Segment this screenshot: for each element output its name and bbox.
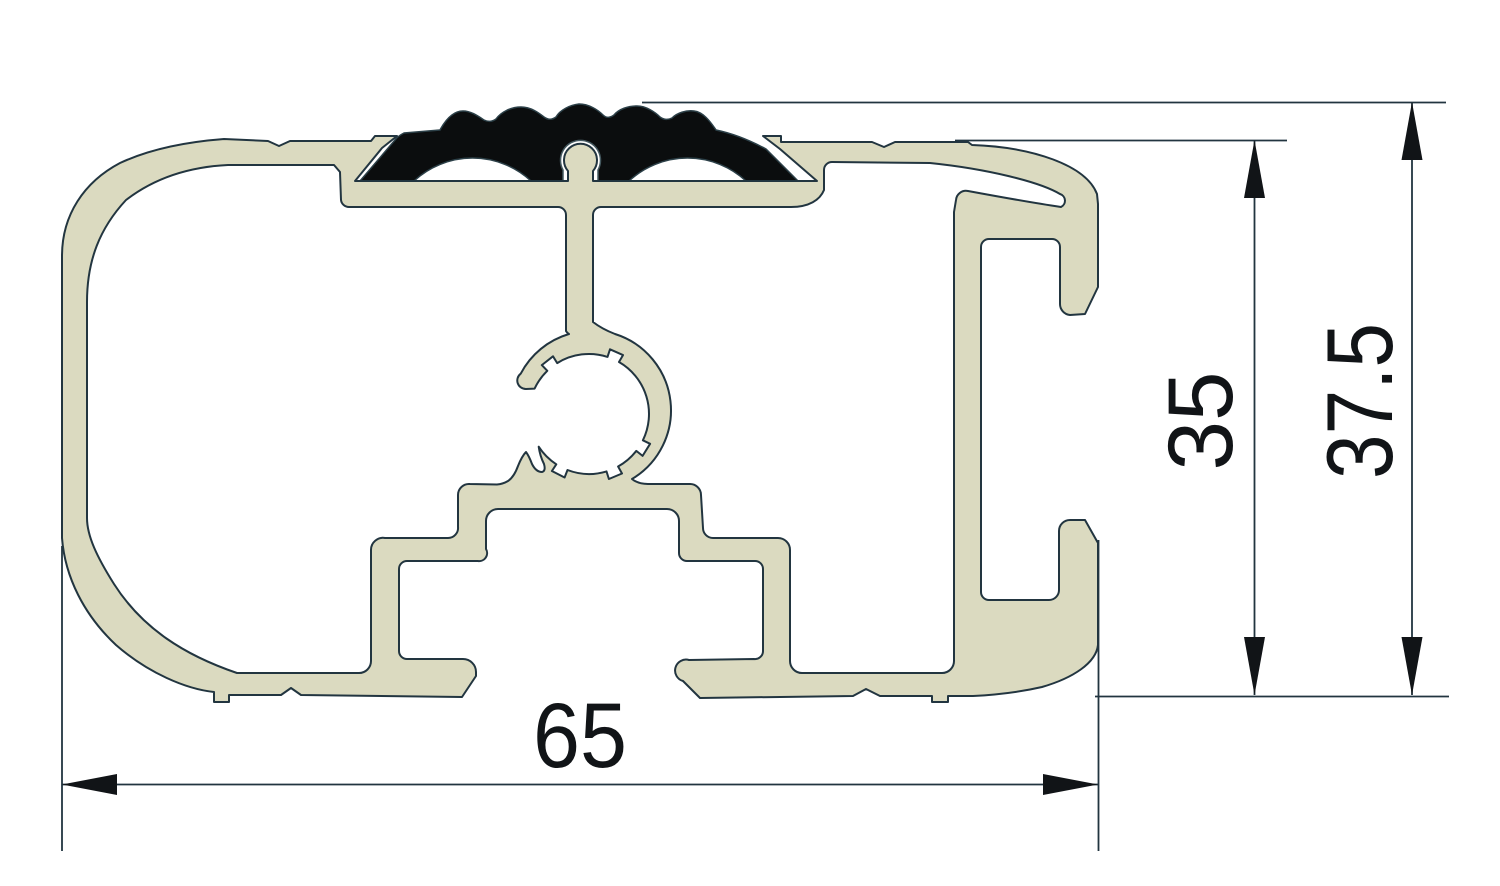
svg-text:65: 65 [533,685,627,787]
svg-text:37.5: 37.5 [1307,323,1412,479]
svg-text:35: 35 [1150,372,1252,471]
